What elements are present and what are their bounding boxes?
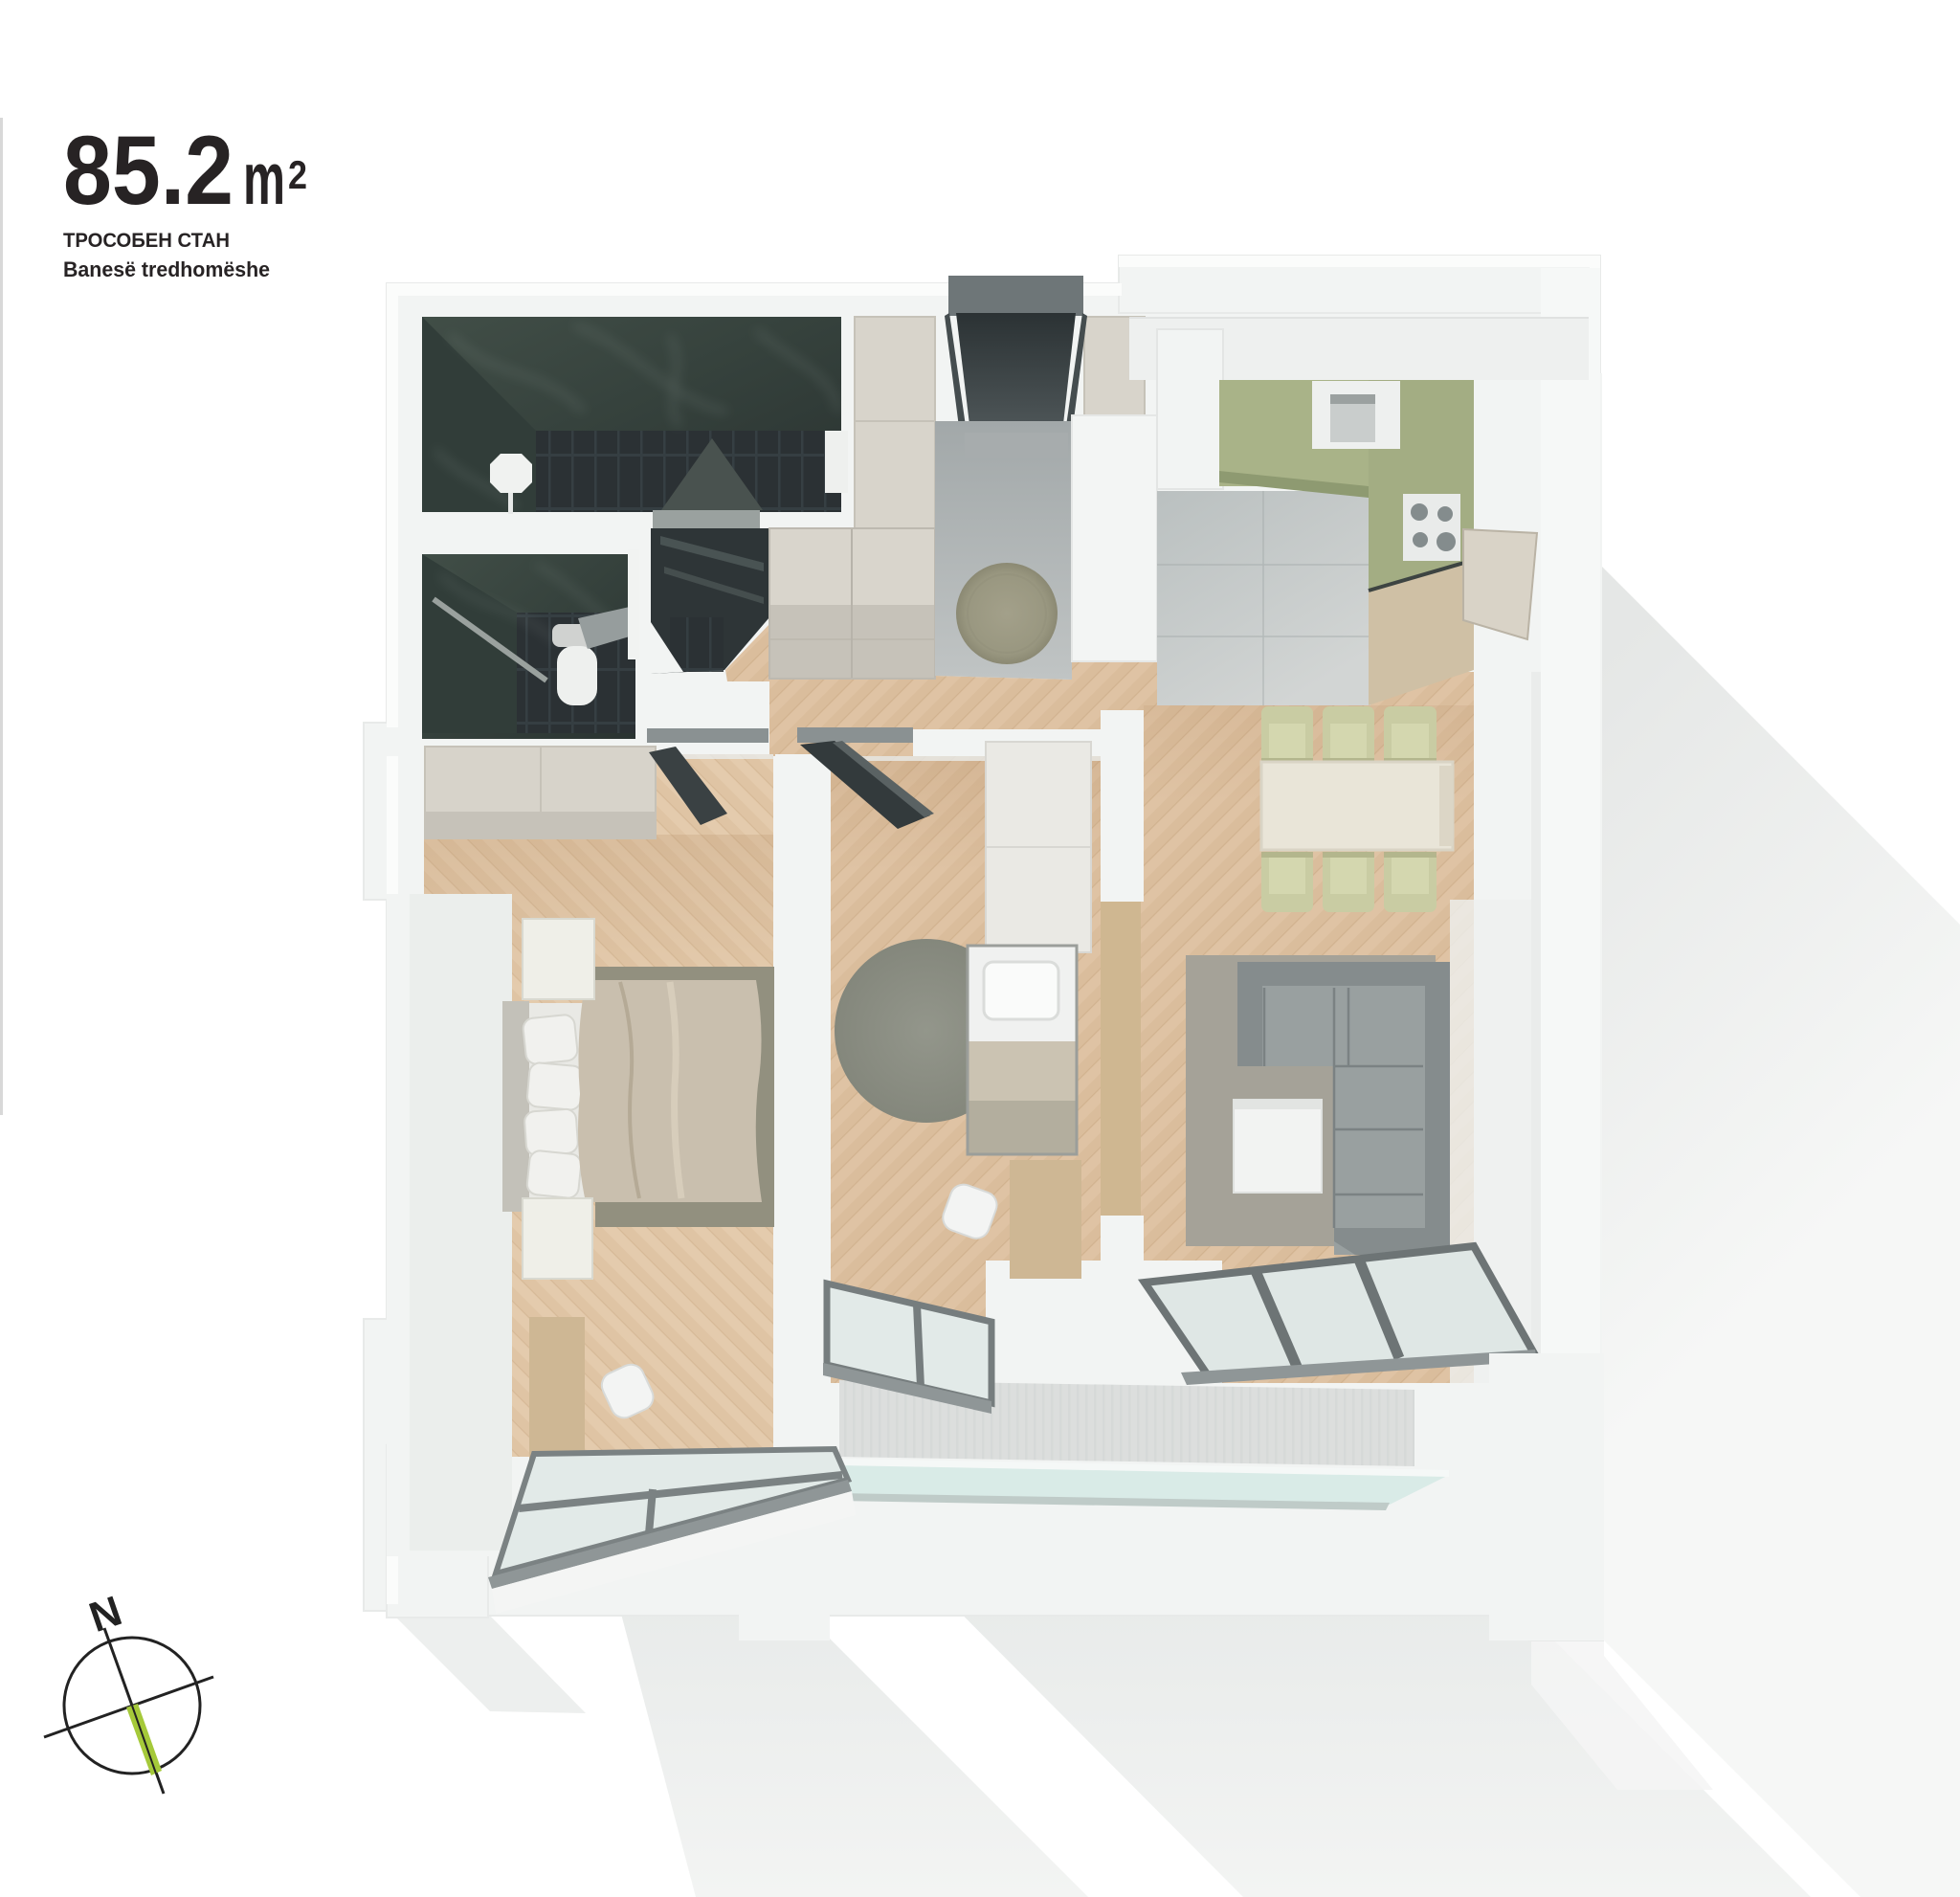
svg-text:2: 2	[288, 152, 307, 197]
svg-text:Banesë tredhomëshe: Banesë tredhomëshe	[63, 257, 270, 281]
svg-text:85.2: 85.2	[63, 116, 234, 225]
svg-text:m: m	[243, 138, 285, 220]
svg-text:ТРОСОБЕН СТАН: ТРОСОБЕН СТАН	[63, 230, 230, 252]
